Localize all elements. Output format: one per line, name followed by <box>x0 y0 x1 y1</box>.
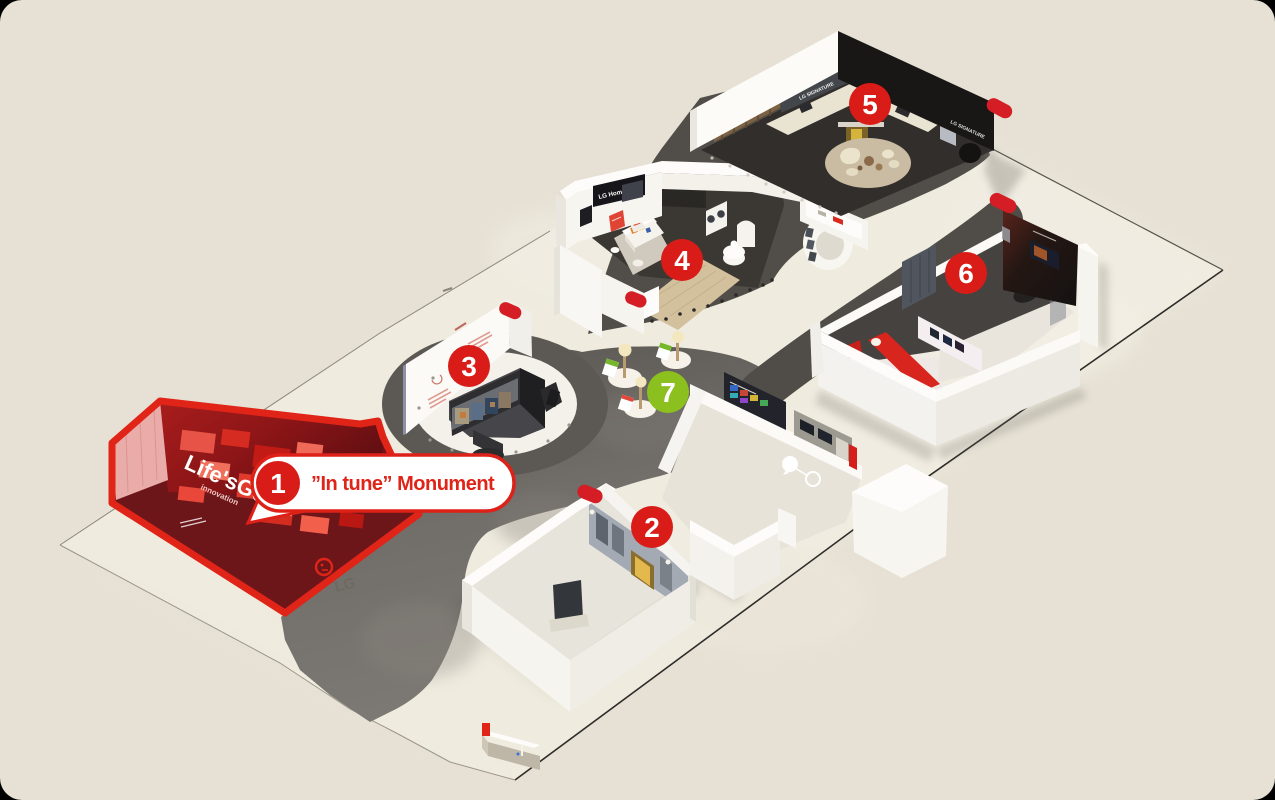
svg-text:2: 2 <box>644 512 660 543</box>
svg-text:1: 1 <box>270 468 286 499</box>
svg-text:6: 6 <box>958 258 974 289</box>
svg-text:3: 3 <box>461 351 477 382</box>
svg-text:”In tune” Monument: ”In tune” Monument <box>311 473 495 495</box>
svg-text:5: 5 <box>862 89 878 120</box>
svg-text:4: 4 <box>674 245 690 276</box>
svg-text:7: 7 <box>660 377 676 408</box>
